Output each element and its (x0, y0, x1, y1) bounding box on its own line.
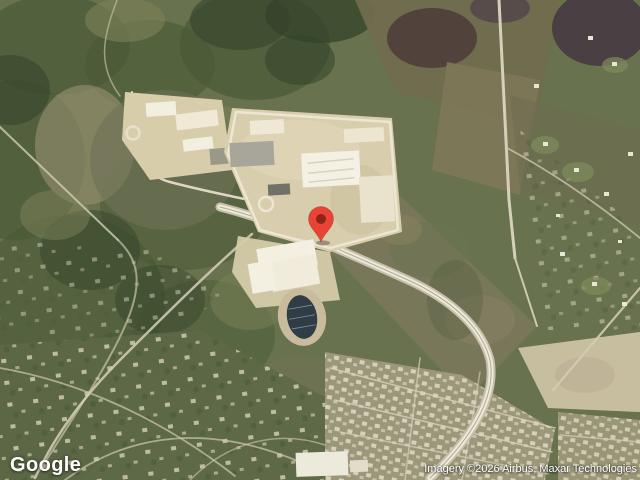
map-pin-dot (316, 214, 326, 224)
map-canvas[interactable]: Google Imagery ©2026 Airbus, Maxar Techn… (0, 0, 640, 480)
satellite-imagery[interactable] (0, 0, 640, 480)
google-logo[interactable]: Google (10, 454, 81, 476)
marker-shadow (316, 241, 330, 246)
imagery-attribution: Imagery ©2026 Airbus, Maxar Technologies (424, 463, 637, 475)
